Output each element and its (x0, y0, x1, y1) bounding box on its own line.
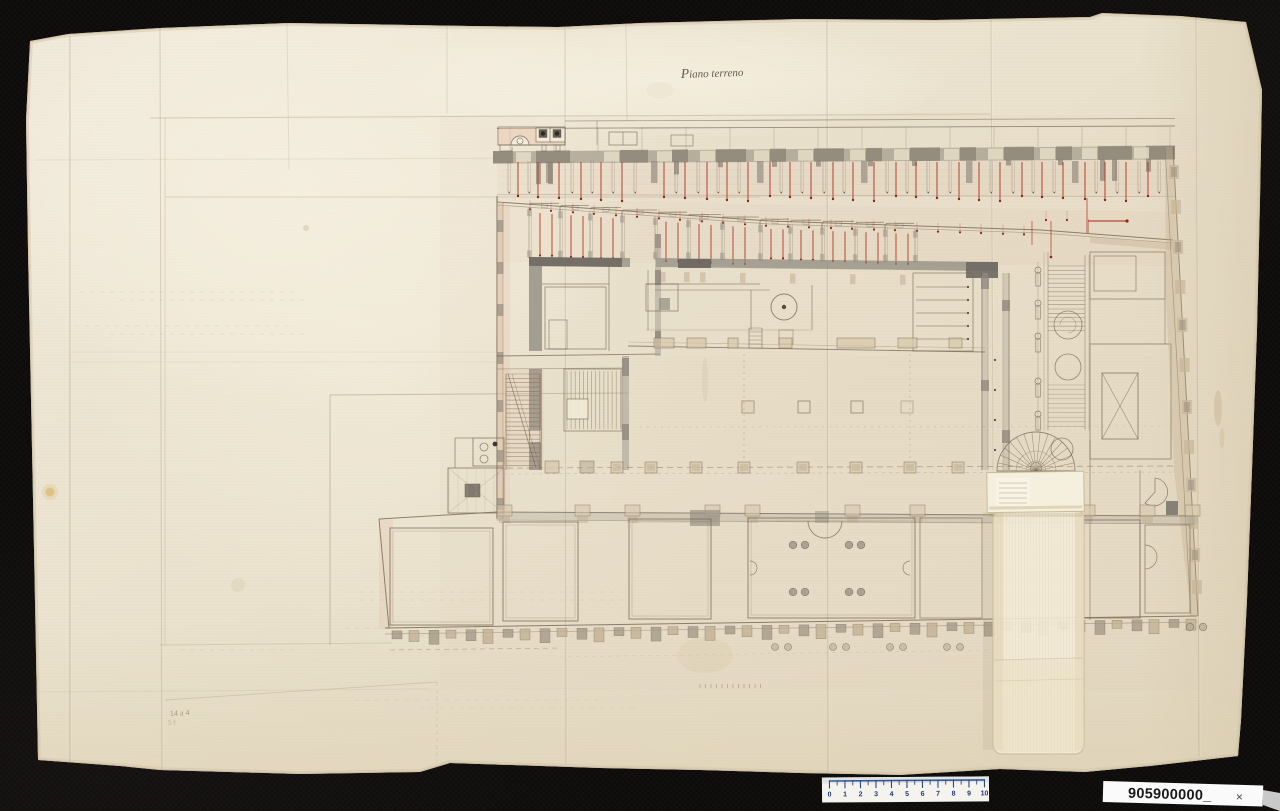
svg-text:3: 3 (874, 791, 878, 798)
svg-text:9: 9 (967, 791, 971, 798)
svg-text:4: 4 (890, 791, 894, 798)
svg-text:10: 10 (981, 790, 989, 797)
svg-text:2: 2 (859, 791, 863, 798)
svg-text:7: 7 (936, 791, 940, 798)
svg-text:5: 5 (905, 791, 909, 798)
svg-text:905900000_: 905900000_ (1128, 786, 1213, 804)
svg-text:6: 6 (921, 791, 925, 798)
svg-text:5 f: 5 f (168, 719, 177, 727)
svg-text:14 a 4: 14 a 4 (170, 708, 190, 718)
svg-text:1: 1 (843, 791, 847, 798)
svg-text:×: × (1236, 790, 1243, 804)
svg-text:0: 0 (828, 791, 832, 798)
svg-text:8: 8 (952, 791, 956, 798)
